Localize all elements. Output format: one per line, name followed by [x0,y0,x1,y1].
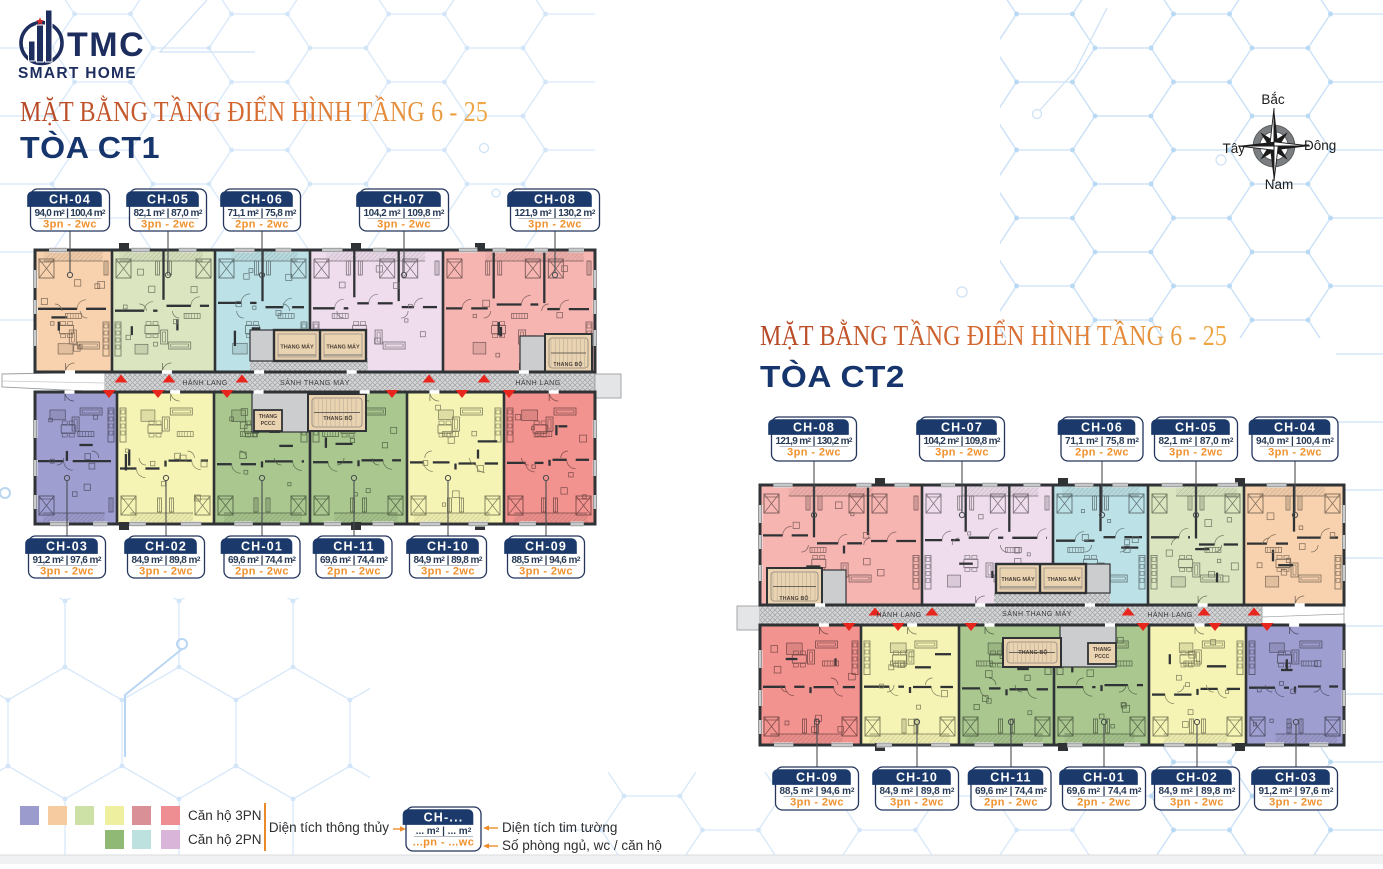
svg-text:THANG MÁY: THANG MÁY [280,344,314,351]
svg-text:3pn - 2wc: 3pn - 2wc [935,447,989,459]
svg-text:CH-07: CH-07 [383,193,425,207]
svg-text:MẶT BẰNG TẦNG ĐIỂN HÌNH TẦNG 6: MẶT BẰNG TẦNG ĐIỂN HÌNH TẦNG 6 - 25 [20,94,488,128]
svg-text:3pn - 2wc: 3pn - 2wc [528,219,582,231]
svg-text:Nam: Nam [1265,177,1294,192]
svg-text:HÀNH LANG: HÀNH LANG [515,378,560,387]
svg-text:Căn hộ 2PN: Căn hộ 2PN [188,832,262,847]
svg-text:3pn - 2wc: 3pn - 2wc [890,797,944,809]
svg-text:SẢNH THANG MÁY: SẢNH THANG MÁY [280,378,350,387]
svg-text:2pn - 2wc: 2pn - 2wc [327,566,381,578]
svg-text:TÒA CT1: TÒA CT1 [20,129,160,165]
svg-text:Đông: Đông [1304,138,1336,153]
svg-text:Số phòng ngủ, wc / căn hộ: Số phòng ngủ, wc / căn hộ [502,838,662,853]
svg-text:2pn - 2wc: 2pn - 2wc [1075,447,1129,459]
svg-text:SMART HOME: SMART HOME [18,65,137,82]
svg-text:2pn - 2wc: 2pn - 2wc [1077,797,1131,809]
svg-text:CH-08: CH-08 [793,421,835,435]
svg-text:71,1 m2 | 75,8 m2: 71,1 m2 | 75,8 m2 [1065,436,1139,447]
svg-text:THANG BỘ: THANG BỘ [779,594,808,602]
svg-text:CH-03: CH-03 [46,540,88,554]
svg-text:84,9 m2 | 89,8 m2: 84,9 m2 | 89,8 m2 [880,786,955,797]
svg-text:3pn - 2wc: 3pn - 2wc [1169,447,1223,459]
svg-text:CH-04: CH-04 [1274,421,1316,435]
svg-text:HÀNH LANG: HÀNH LANG [876,610,921,619]
svg-text:HÀNH LANG: HÀNH LANG [182,378,227,387]
svg-text:3pn - 2wc: 3pn - 2wc [141,219,195,231]
svg-text:CH-09: CH-09 [525,540,567,554]
svg-text:CH-11: CH-11 [990,771,1031,785]
svg-text:3pn - 2wc: 3pn - 2wc [421,566,475,578]
svg-text:3pn - 2wc: 3pn - 2wc [1170,797,1224,809]
svg-text:69,6 m2 | 74,4 m2: 69,6 m2 | 74,4 m2 [1067,786,1142,797]
svg-text:91,2 m2 | 97,6 m2: 91,2 m2 | 97,6 m2 [1259,786,1334,797]
svg-text:Diện tích tim tường: Diện tích tim tường [502,820,617,835]
svg-text:3pn - 2wc: 3pn - 2wc [787,447,841,459]
svg-text:94,0 m2 | 100,4 m2: 94,0 m2 | 100,4 m2 [1256,436,1334,447]
svg-text:88,5 m2 | 94,6 m2: 88,5 m2 | 94,6 m2 [512,555,581,566]
svg-text:Bắc: Bắc [1261,92,1285,107]
svg-text:CH-10: CH-10 [427,540,469,554]
svg-text:82,1 m2 | 87,0 m2: 82,1 m2 | 87,0 m2 [1159,436,1234,447]
svg-text:Tây: Tây [1222,141,1245,156]
svg-text:104,2 m2 | 109,8 m2: 104,2 m2 | 109,8 m2 [924,436,1001,447]
svg-text:CH-08: CH-08 [534,193,576,207]
svg-text:THANG MÁY: THANG MÁY [326,344,360,351]
svg-text:SẢNH THANG MÁY: SẢNH THANG MÁY [1002,609,1072,618]
svg-text:71,1 m2 | 75,8 m2: 71,1 m2 | 75,8 m2 [228,208,297,219]
svg-text:THANG: THANG [259,414,277,420]
svg-text:69,6 m2 | 74,4 m2: 69,6 m2 | 74,4 m2 [228,555,296,566]
svg-text:84,9 m2 | 89,8 m2: 84,9 m2 | 89,8 m2 [1159,786,1236,797]
svg-text:CH-03: CH-03 [1275,771,1317,785]
svg-text:CH-02: CH-02 [1176,771,1218,785]
svg-text:CH-06: CH-06 [241,193,283,207]
svg-text:CH-10: CH-10 [896,771,938,785]
svg-text:3pn - 2wc: 3pn - 2wc [377,219,431,231]
svg-text:TMC: TMC [67,26,145,64]
svg-text:THANG: THANG [1093,647,1111,653]
svg-text:CH-06: CH-06 [1081,421,1123,435]
svg-text:MẶT BẰNG TẦNG ĐIỂN HÌNH TẦNG 6: MẶT BẰNG TẦNG ĐIỂN HÌNH TẦNG 6 - 25 [760,318,1227,352]
svg-text:CH-01: CH-01 [1083,771,1125,785]
svg-text:84,9 m2 | 89,8 m2: 84,9 m2 | 89,8 m2 [414,555,483,566]
svg-text:3pn - 2wc: 3pn - 2wc [790,797,844,809]
svg-text:Căn hộ 3PN: Căn hộ 3PN [188,808,262,823]
svg-text:CH-11: CH-11 [333,540,374,554]
svg-text:2pn - 2wc: 2pn - 2wc [235,219,289,231]
svg-text:TÒA CT2: TÒA CT2 [760,358,905,394]
svg-text:THANG MÁY: THANG MÁY [1001,576,1035,583]
svg-text:3pn - 2wc: 3pn - 2wc [40,566,94,578]
svg-text:CH-...: CH-... [424,811,464,825]
svg-text:PCCC: PCCC [261,421,276,427]
svg-text:CH-05: CH-05 [147,193,189,207]
svg-text:THANG MÁY: THANG MÁY [1047,576,1081,583]
svg-text:84,9 m2 | 89,8 m2: 84,9 m2 | 89,8 m2 [132,555,201,566]
svg-text:THANG BỘ: THANG BỘ [1018,648,1047,656]
svg-text:2pn - 2wc: 2pn - 2wc [984,797,1038,809]
svg-text:69,6 m2 | 74,4 m2: 69,6 m2 | 74,4 m2 [320,555,388,566]
svg-text:CH-04: CH-04 [49,193,91,207]
svg-text:121,9 m2 | 130,2 m2: 121,9 m2 | 130,2 m2 [776,436,853,447]
svg-text:88,5 m2 | 94,6 m2: 88,5 m2 | 94,6 m2 [780,786,855,797]
svg-text:CH-09: CH-09 [796,771,838,785]
svg-text:2pn - 2wc: 2pn - 2wc [235,566,289,578]
svg-text:3pn - 2wc: 3pn - 2wc [519,566,573,578]
svg-text:94,0 m2 | 100,4 m2: 94,0 m2 | 100,4 m2 [35,208,106,219]
svg-text:3pn - 2wc: 3pn - 2wc [1269,797,1323,809]
svg-text:121,9 m2 | 130,2 m2: 121,9 m2 | 130,2 m2 [515,208,596,219]
svg-text:3pn - 2wc: 3pn - 2wc [139,566,193,578]
svg-text:... m2 | ... m2: ... m2 | ... m2 [416,826,472,837]
svg-text:Diện tích thông thủy: Diện tích thông thủy [269,820,389,835]
svg-text:CH-05: CH-05 [1175,421,1217,435]
svg-text:3pn - 2wc: 3pn - 2wc [1268,447,1322,459]
svg-text:CH-01: CH-01 [241,540,283,554]
svg-text:104,2 m2 | 109,8 m2: 104,2 m2 | 109,8 m2 [364,208,445,219]
svg-text:THANG BỘ: THANG BỘ [553,360,582,368]
svg-text:HÀNH LANG: HÀNH LANG [1147,610,1192,619]
svg-text:CH-02: CH-02 [145,540,187,554]
svg-text:82,1 m2 | 87,0 m2: 82,1 m2 | 87,0 m2 [134,208,203,219]
svg-text:PCCC: PCCC [1095,654,1110,660]
svg-text:3pn - 2wc: 3pn - 2wc [43,219,97,231]
svg-text:69,6 m2 | 74,4 m2: 69,6 m2 | 74,4 m2 [975,786,1047,797]
svg-text:THANG BỘ: THANG BỘ [323,414,352,422]
svg-text:91,2 m2 | 97,6 m2: 91,2 m2 | 97,6 m2 [33,555,102,566]
svg-text:...pn - ...wc: ...pn - ...wc [413,837,474,849]
svg-text:CH-07: CH-07 [941,421,983,435]
